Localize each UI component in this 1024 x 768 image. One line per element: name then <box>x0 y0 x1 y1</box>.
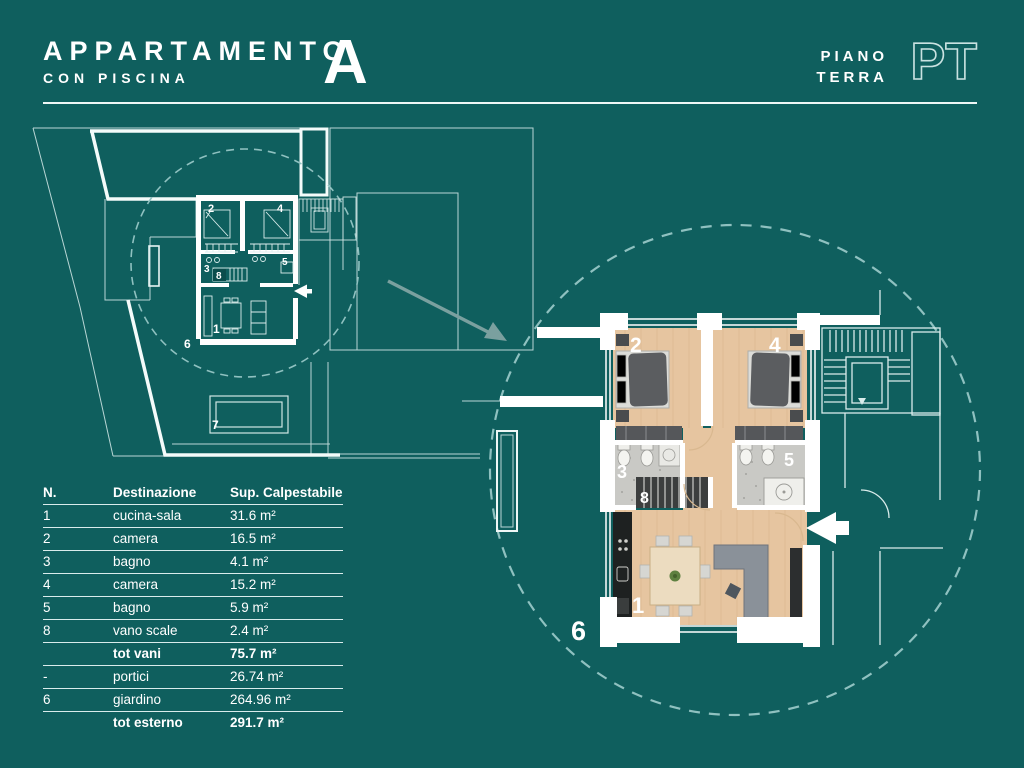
room-label-1: 1 <box>632 593 644 618</box>
cell-n: 8 <box>43 623 113 638</box>
cell-dest: cucina-sala <box>113 508 230 523</box>
cell-sup: 16.5 m² <box>230 531 343 546</box>
cell-n: 5 <box>43 600 113 615</box>
zoom-arrow <box>388 281 507 341</box>
cell-dest: tot vani <box>113 646 230 661</box>
cell-dest: portici <box>113 669 230 684</box>
cell-sup: 31.6 m² <box>230 508 343 523</box>
site-room-label-3: 3 <box>204 264 210 275</box>
cell-sup: 75.7 m² <box>230 646 343 661</box>
table-row: 3 bagno 4.1 m² <box>43 551 343 574</box>
entrance-arrow <box>806 512 849 544</box>
cell-n: - <box>43 669 113 684</box>
cell-sup: 2.4 m² <box>230 623 343 638</box>
pool <box>210 396 288 433</box>
area-table: N. Destinazione Sup. Calpestabile 1 cuci… <box>43 482 343 734</box>
cell-dest: vano scale <box>113 623 230 638</box>
cell-n: 1 <box>43 508 113 523</box>
cell-sup: 26.74 m² <box>230 669 343 684</box>
cell-sup: 15.2 m² <box>230 577 343 592</box>
table-row: 8 vano scale 2.4 m² <box>43 620 343 643</box>
site-room-label-8: 8 <box>216 271 222 282</box>
table-row-total-vani: tot vani 75.7 m² <box>43 643 343 666</box>
table-row: 1 cucina-sala 31.6 m² <box>43 505 343 528</box>
room-label-8: 8 <box>640 490 649 507</box>
room-label-4: 4 <box>769 334 781 357</box>
table-row: 2 camera 16.5 m² <box>43 528 343 551</box>
neighbor-parcel-outline <box>330 128 533 350</box>
col-header-destinazione: Destinazione <box>113 485 230 500</box>
cell-n: 6 <box>43 692 113 707</box>
cell-sup: 264.96 m² <box>230 692 343 707</box>
site-room-label-5: 5 <box>282 257 288 268</box>
cell-n: 2 <box>43 531 113 546</box>
cell-dest: giardino <box>113 692 230 707</box>
cell-n: 4 <box>43 577 113 592</box>
cell-dest: tot esterno <box>113 715 230 730</box>
cell-dest: camera <box>113 531 230 546</box>
room-label-2: 2 <box>630 334 642 357</box>
table-row: - portici 26.74 m² <box>43 666 343 689</box>
table-row: 5 bagno 5.9 m² <box>43 597 343 620</box>
table-row: 4 camera 15.2 m² <box>43 574 343 597</box>
cell-sup: 291.7 m² <box>230 715 343 730</box>
cell-dest: bagno <box>113 600 230 615</box>
site-pool-label: 7 <box>212 418 219 432</box>
room-label-5: 5 <box>784 450 794 470</box>
site-plan: 7 <box>33 128 533 458</box>
garden-label: 6 <box>571 616 586 646</box>
col-header-n: N. <box>43 485 113 500</box>
site-room-label-2: 2 <box>208 203 214 215</box>
zoom-plan: 2 4 3 5 8 1 6 <box>462 225 980 715</box>
context-left <box>462 327 603 531</box>
table-row: 6 giardino 264.96 m² <box>43 689 343 712</box>
area-table-header: N. Destinazione Sup. Calpestabile <box>43 482 343 505</box>
table-row-total-esterno: tot esterno 291.7 m² <box>43 712 343 734</box>
col-header-sup: Sup. Calpestabile <box>230 485 343 500</box>
cell-sup: 4.1 m² <box>230 554 343 569</box>
cell-dest: camera <box>113 577 230 592</box>
cell-dest: bagno <box>113 554 230 569</box>
site-room-label-1: 1 <box>213 322 220 336</box>
site-entrance-arrow <box>294 285 312 299</box>
cell-sup: 5.9 m² <box>230 600 343 615</box>
cell-n: 3 <box>43 554 113 569</box>
site-garden-label: 6 <box>184 337 191 351</box>
site-room-label-4: 4 <box>277 203 284 215</box>
stairwell-outline <box>820 290 943 645</box>
room-label-3: 3 <box>617 462 627 482</box>
